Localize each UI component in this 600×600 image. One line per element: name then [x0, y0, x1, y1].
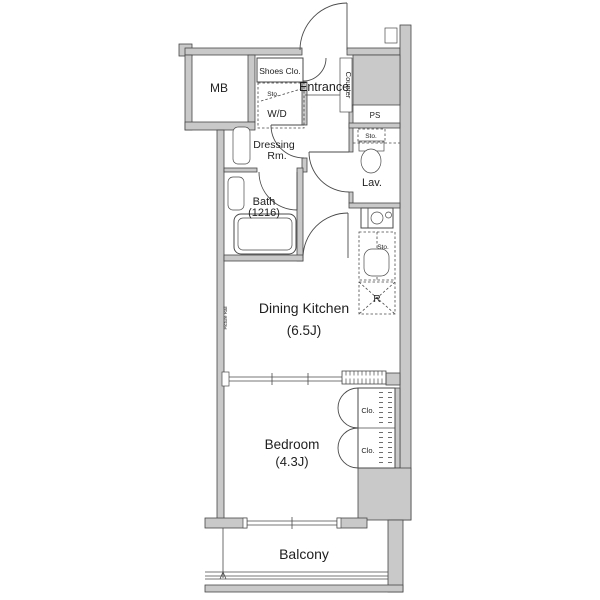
wall-dressing-bath — [224, 168, 257, 172]
label-closet-upper: Clo. — [361, 406, 374, 415]
wall-balcony-bottom-bar — [205, 585, 403, 592]
wall-mb-right — [248, 55, 255, 122]
label-lav-storage: Sto. — [365, 133, 377, 140]
window-jamb-left — [243, 518, 247, 528]
lav-door-arc — [309, 152, 349, 192]
shoes-closet-door-arc — [303, 58, 326, 81]
washer-dryer-space — [258, 83, 304, 128]
wall-balcony-right — [388, 520, 403, 592]
dk-door-arc — [303, 213, 348, 258]
wall-mb-left — [185, 55, 192, 130]
wall-bath-right — [297, 168, 303, 261]
room-label-washer-dryer: W/D — [267, 109, 286, 120]
toilet-bowl — [361, 149, 381, 173]
bathtub-inner — [238, 218, 292, 250]
wall-right — [400, 25, 411, 520]
closet-upper-bifold-arc-1 — [338, 388, 358, 408]
closet-lower-bifold-arc-2 — [338, 448, 358, 468]
room-label-mb: MB — [210, 81, 228, 95]
label-wd-storage: Sto. — [267, 91, 279, 98]
wall-closet-back — [395, 388, 400, 468]
label-closet-lower: Clo. — [361, 446, 374, 455]
kitchen-sink — [364, 249, 389, 276]
floorplan-canvas: MB Shoes Clo. Entrance Counter Sto. W/D … — [0, 0, 600, 600]
partition-end-bracket — [222, 372, 229, 386]
bath-counter — [228, 177, 244, 210]
wall-corridor-right-lower — [349, 192, 353, 203]
wall-bottom-right-mass — [358, 468, 411, 520]
room-label-balcony: Balcony — [279, 546, 329, 562]
wall-bedroom-bottom-left — [205, 518, 247, 528]
entrance-door-arc — [300, 3, 347, 50]
room-label-dressing-2: Rm. — [267, 150, 286, 162]
wall-top-b — [347, 48, 400, 55]
room-label-dining-kitchen: Dining Kitchen — [259, 300, 349, 316]
label-bedroom-size: (4.3J) — [275, 454, 308, 469]
pipe-box — [385, 28, 397, 43]
closet-lower-bifold-arc-1 — [338, 428, 358, 448]
stove-burner-large — [371, 212, 383, 224]
wall-top-a — [185, 48, 302, 55]
label-kitchen-storage: Sto. — [377, 244, 389, 251]
washbasin — [233, 127, 250, 164]
room-label-entrance: Entrance — [299, 80, 349, 94]
label-bath-size: (1216) — [248, 207, 280, 219]
shelf-hatch-box — [342, 371, 386, 384]
wall-ps-bottom — [349, 123, 400, 128]
wall-lav-bottom — [349, 203, 400, 208]
closet-upper-hatch — [374, 392, 392, 424]
label-picture-rail: Picture Rail — [223, 306, 228, 329]
wall-bedroom-bottom-right — [337, 518, 367, 528]
label-entrance-counter: Counter — [344, 72, 353, 99]
stove-burner-small — [386, 212, 392, 218]
label-dining-kitchen-size: (6.5J) — [287, 323, 322, 338]
wall-service-shaft-mass — [353, 55, 400, 105]
label-refrigerator: R — [373, 294, 380, 305]
wall-bath-bottom — [224, 255, 303, 261]
room-label-ps: PS — [370, 111, 381, 120]
floorplan-svg: MB Shoes Clo. Entrance Counter Sto. W/D … — [0, 0, 600, 600]
room-label-lavatory: Lav. — [362, 177, 382, 189]
window-jamb-right — [337, 518, 341, 528]
closet-upper-bifold-arc-2 — [338, 408, 358, 428]
wall-closet-top-joint — [386, 373, 400, 385]
room-label-bedroom: Bedroom — [265, 437, 320, 452]
closet-lower-hatch — [374, 432, 392, 464]
room-label-shoes-closet: Shoes Clo. — [259, 66, 301, 76]
